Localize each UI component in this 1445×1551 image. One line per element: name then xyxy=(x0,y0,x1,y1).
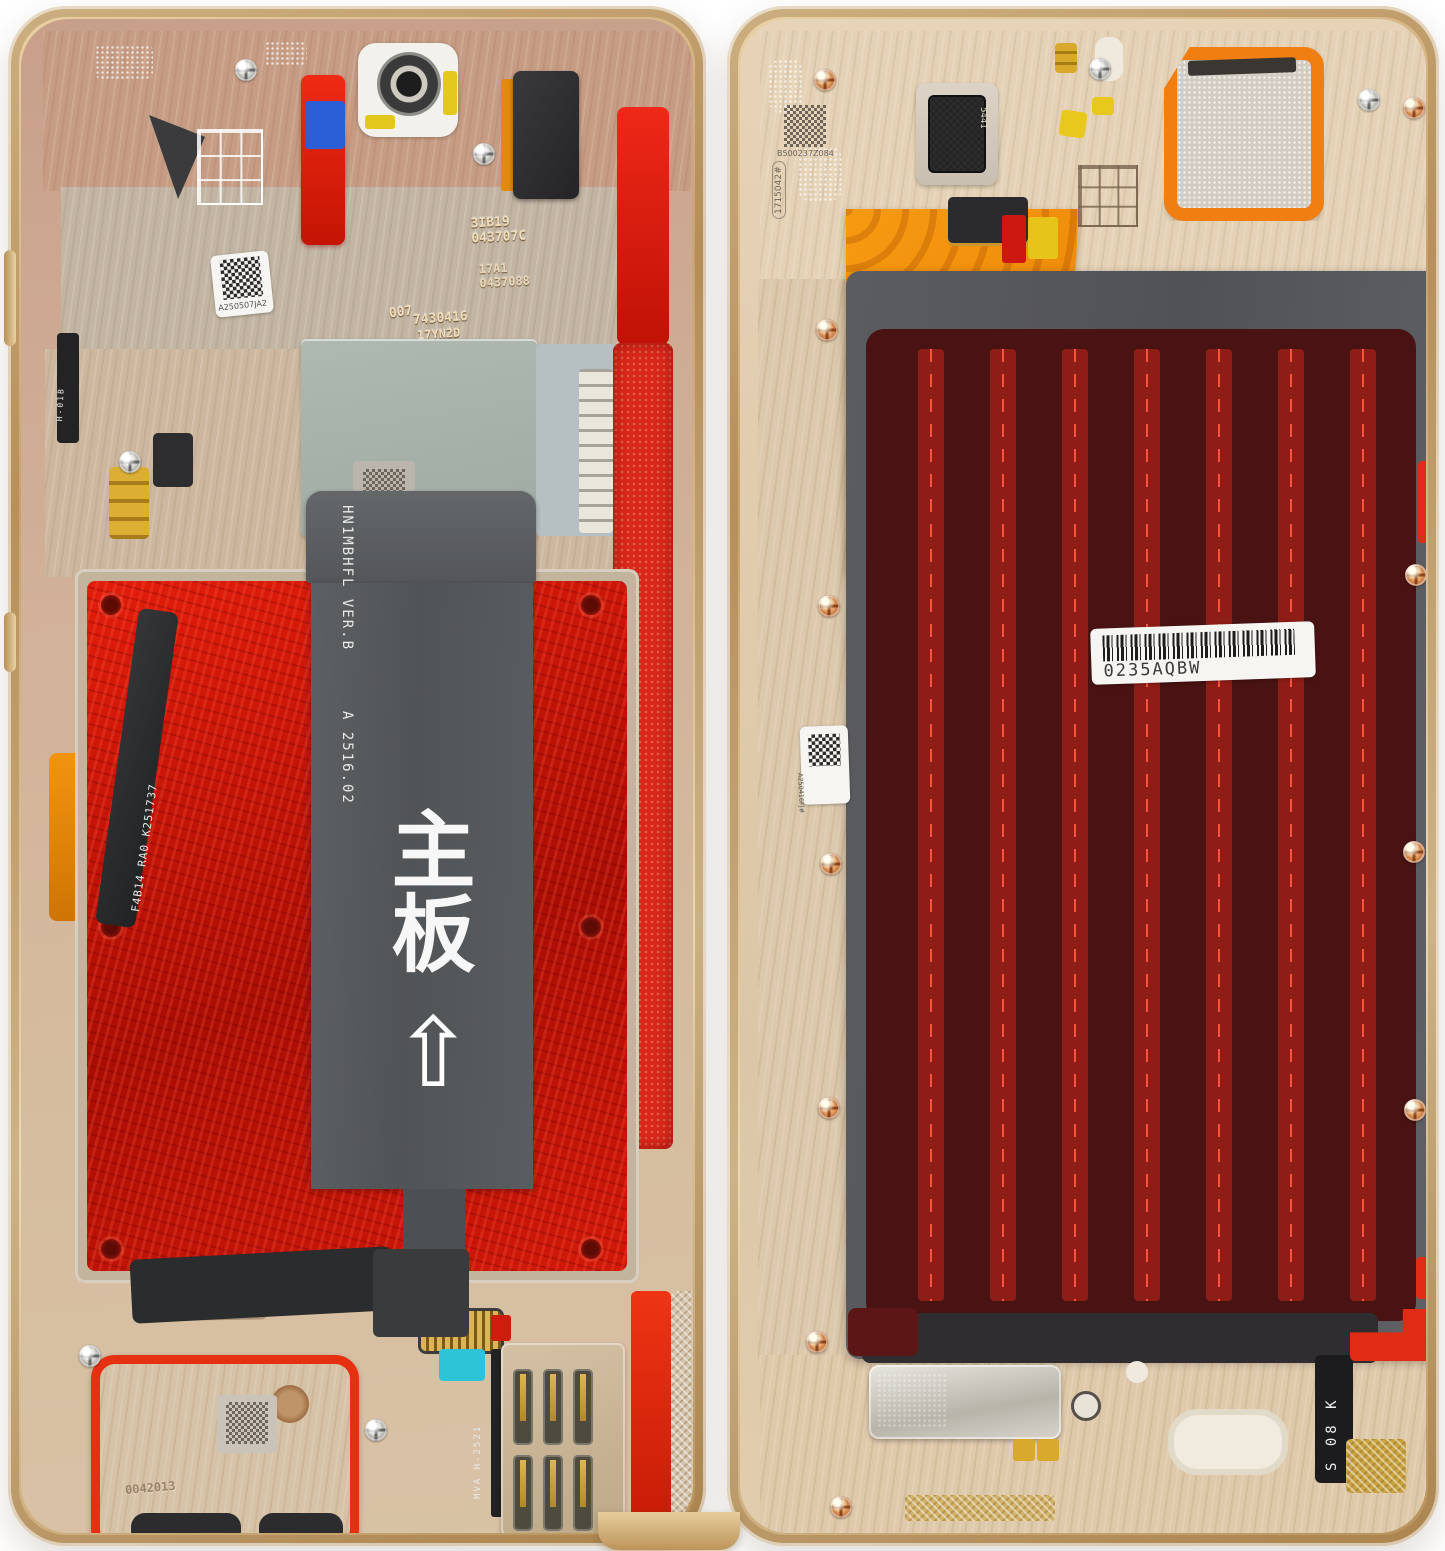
frame-hole xyxy=(1126,1361,1148,1383)
barcode-icon xyxy=(1102,629,1295,662)
sim-flex-label: MVA H-2521 xyxy=(473,1425,483,1499)
gold-contact-pads xyxy=(1055,43,1077,73)
screw-hole xyxy=(101,595,121,615)
barcode-sticker: 0235AQBW xyxy=(1090,621,1316,685)
red-adhesive-patch xyxy=(1416,1257,1426,1299)
left-half-interior: 3IB19 043707C 17A1 0437088 A250507JA2 00… xyxy=(21,19,693,1533)
gold-pad xyxy=(1013,1439,1035,1461)
antenna-mesh-patch xyxy=(265,41,307,67)
contact-strip xyxy=(579,369,613,533)
mid-steel-shield xyxy=(61,187,661,357)
sim-contact xyxy=(543,1369,563,1445)
qr-code-icon xyxy=(219,256,263,300)
frame-vertical-label: 1715042# xyxy=(772,161,786,219)
screw xyxy=(473,143,495,165)
camera-lens-icon xyxy=(380,55,438,113)
etched-grid-mark xyxy=(197,129,263,205)
qr-code-icon xyxy=(808,733,841,766)
speaker-port-slot xyxy=(131,1513,241,1533)
speaker-port-slot xyxy=(259,1513,343,1533)
corner-label-text: S 08 K xyxy=(1324,1396,1340,1471)
screw-hole xyxy=(581,917,601,937)
display-flex-bottom xyxy=(130,1246,395,1324)
screw xyxy=(1089,58,1111,80)
earpiece-mark: 5441 xyxy=(978,107,988,129)
red-adhesive-stripe xyxy=(1278,349,1304,1301)
screw xyxy=(235,59,257,81)
screw xyxy=(814,69,836,91)
red-tape xyxy=(1002,215,1026,263)
sim-contact xyxy=(513,1455,533,1531)
screw xyxy=(818,1097,840,1119)
red-adhesive-stripe xyxy=(990,349,1016,1301)
left-half-frame: 3IB19 043707C 17A1 0437088 A250507JA2 00… xyxy=(8,6,706,1546)
gold-contact-pads xyxy=(109,467,149,539)
gold-mesh-strip xyxy=(905,1495,1055,1521)
button-flex-label: H-01B xyxy=(55,387,66,422)
gold-pad xyxy=(1037,1439,1059,1461)
screw-hole xyxy=(581,1239,601,1259)
etched-code-block: 17A1 0437088 xyxy=(478,260,530,291)
yellow-tape xyxy=(1092,97,1114,115)
frame-qr-text: B500237Z084 xyxy=(777,149,834,158)
yellow-tape xyxy=(365,115,395,129)
sim-contact xyxy=(573,1369,593,1445)
qr-code-icon xyxy=(226,1402,268,1444)
screw xyxy=(119,451,141,473)
etched-line: 0437088 xyxy=(479,274,530,291)
qr-label-text: A250507JA2 xyxy=(218,299,267,313)
blue-sticker xyxy=(305,101,345,149)
qr-label: A250507JA2 xyxy=(210,250,274,318)
antenna-mesh-patch xyxy=(95,45,153,79)
yellow-tape xyxy=(1058,109,1087,138)
power-button xyxy=(4,612,16,672)
screw xyxy=(1358,89,1380,111)
orientation-arrow-icon: ⇧ xyxy=(393,1005,473,1101)
frame-oval-cutout xyxy=(1168,1409,1288,1475)
textured-frame-corner xyxy=(671,1291,693,1533)
red-adhesive-stripe xyxy=(1134,349,1160,1301)
main-flex-model-text: HN1MBHFL VER.B xyxy=(339,505,355,651)
right-half-interior: B500237Z084 1715042# 5441 HN1MBHFZ01 VB … xyxy=(740,19,1426,1533)
qr-label: A250416FJ# xyxy=(800,725,851,805)
screw xyxy=(806,1331,828,1353)
qr-label-text: A250416FJ# xyxy=(796,773,805,814)
screw-hole xyxy=(101,1239,121,1259)
screw-hole xyxy=(581,595,601,615)
screw xyxy=(830,1496,852,1518)
sim-contact xyxy=(543,1455,563,1531)
screw xyxy=(820,853,842,875)
cyan-tape xyxy=(439,1349,485,1381)
qr-code-icon xyxy=(784,105,826,147)
flex-junction xyxy=(373,1249,469,1337)
yellow-tape xyxy=(1028,217,1058,259)
screw xyxy=(818,595,840,617)
red-adhesive-patch xyxy=(1418,461,1426,543)
screw xyxy=(816,319,838,341)
red-component xyxy=(491,1315,511,1341)
microphone-hole xyxy=(1071,1391,1101,1421)
display-bottom-bar xyxy=(862,1313,1378,1363)
barcode-text: 0235AQBW xyxy=(1103,658,1202,681)
motor-etch-pattern xyxy=(877,1373,947,1429)
black-foam-pad xyxy=(153,433,193,487)
screw xyxy=(1405,564,1426,586)
screw xyxy=(79,1345,101,1367)
screw xyxy=(365,1419,387,1441)
volume-button xyxy=(4,250,16,346)
right-half-frame: B500237Z084 1715042# 5441 HN1MBHFZ01 VB … xyxy=(727,6,1439,1546)
photo-scene: 3IB19 043707C 17A1 0437088 A250507JA2 00… xyxy=(0,0,1445,1551)
red-adhesive-tab xyxy=(617,107,669,345)
red-adhesive-stripe xyxy=(918,349,944,1301)
red-adhesive-stripe xyxy=(1206,349,1232,1301)
yellow-tape xyxy=(443,71,457,115)
speaker-qr-sticker xyxy=(217,1395,277,1453)
sim-contact xyxy=(573,1455,593,1531)
red-adhesive-stripe xyxy=(1350,349,1376,1301)
etched-line: 043707C xyxy=(471,229,527,247)
camera-flex-connector xyxy=(513,71,579,199)
gold-mesh-pad xyxy=(1346,1439,1406,1493)
etched-code-block: 3IB19 043707C xyxy=(470,214,526,247)
dark-red-pad xyxy=(848,1308,918,1356)
sim-contact xyxy=(513,1369,533,1445)
red-adhesive-stripe xyxy=(1062,349,1088,1301)
hinge-spine xyxy=(598,1512,740,1550)
screw xyxy=(1404,1099,1426,1121)
screw xyxy=(1403,97,1425,119)
vibration-motor xyxy=(869,1365,1061,1439)
etched-grid-mark xyxy=(1078,165,1138,227)
main-flex-revision-text: A 2516.02 xyxy=(339,711,355,805)
red-adhesive-strip xyxy=(631,1291,671,1533)
main-flex-cn-text: 主板 xyxy=(373,775,481,1005)
screw xyxy=(1403,841,1425,863)
left-margin-plate xyxy=(758,279,852,1359)
